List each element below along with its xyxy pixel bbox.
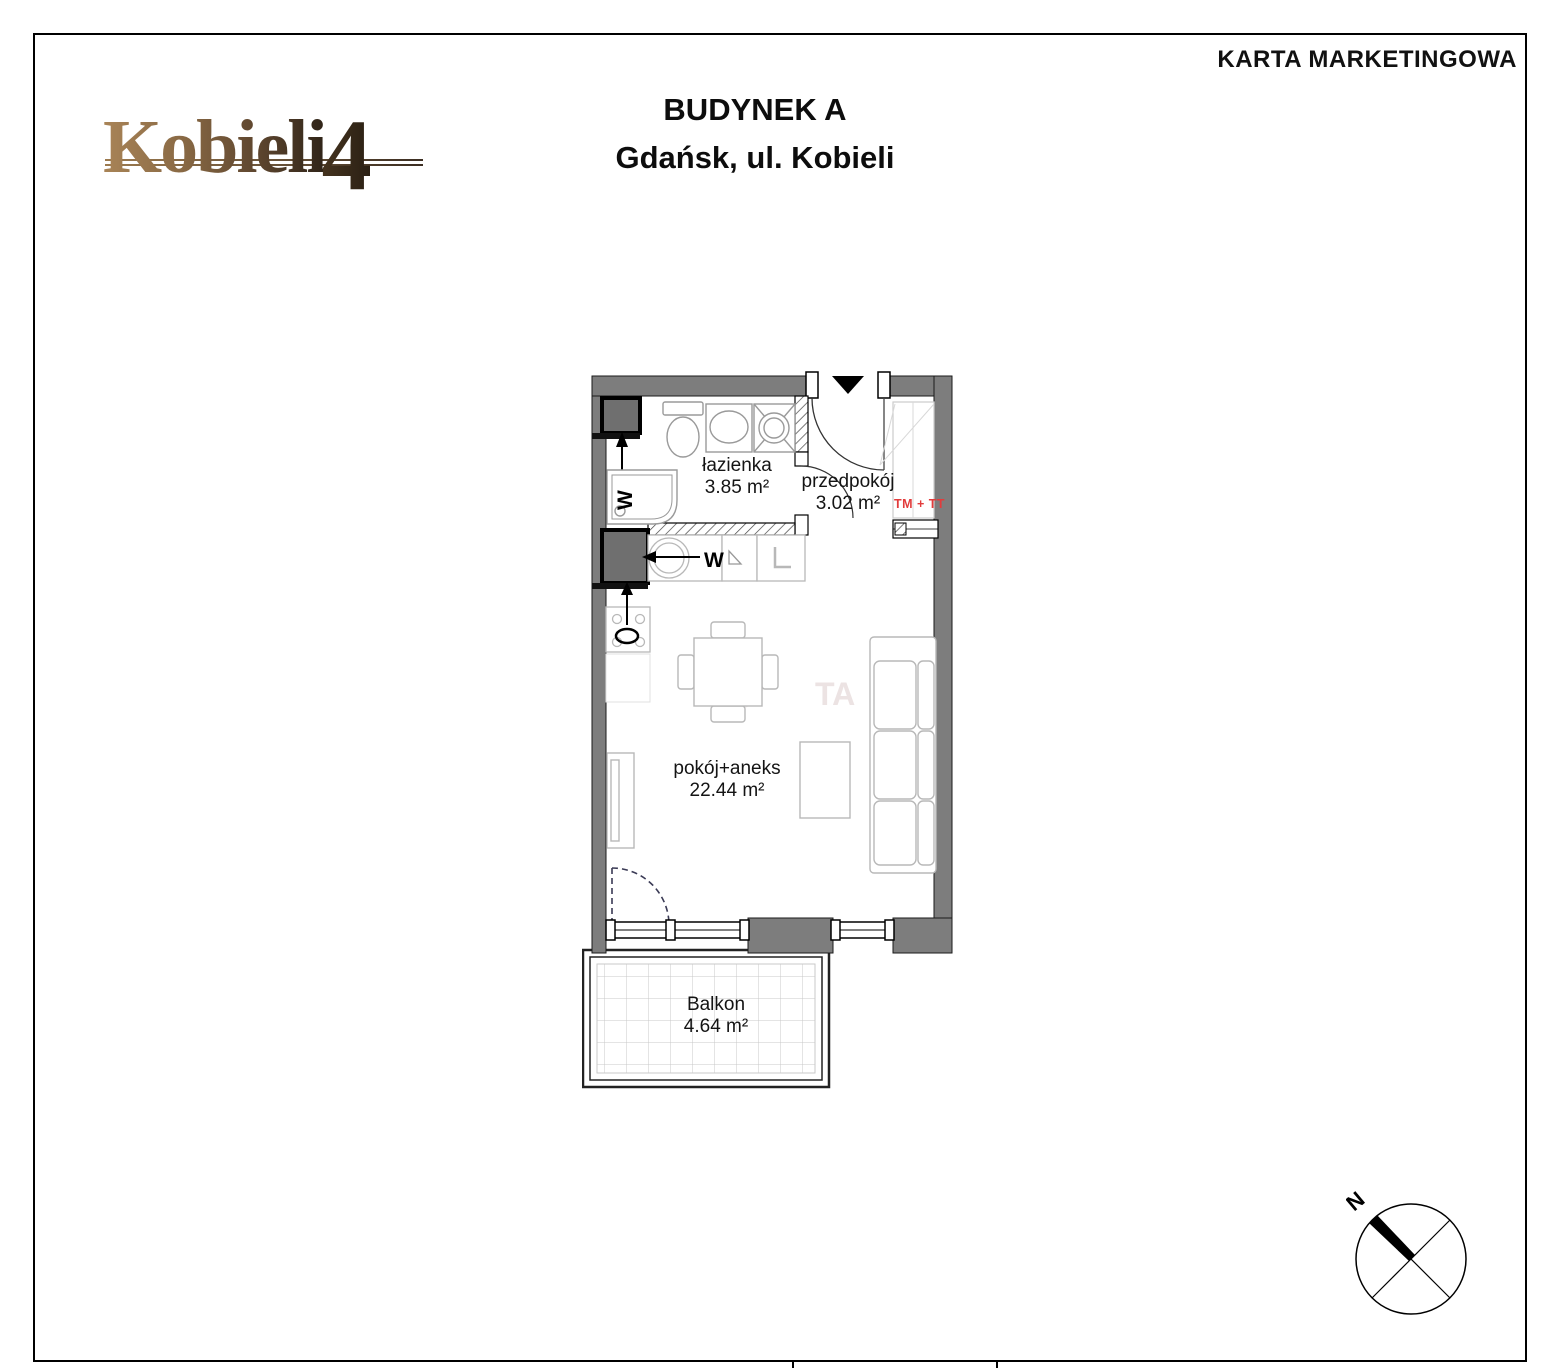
plan-title-block: BUDYNEK A Gdańsk, ul. Kobieli <box>530 86 980 182</box>
balcony-label: Balkon 4.64 m² <box>684 994 748 1038</box>
washbasin <box>706 404 752 452</box>
bathroom-label: łazienka 3.85 m² <box>702 455 772 499</box>
room-name: łazienka <box>702 455 772 477</box>
room-area: 22.44 m² <box>673 780 780 802</box>
living-room-label: pokój+aneks 22.44 m² <box>673 758 780 802</box>
balcony-door-arc <box>612 868 669 925</box>
compass-north-label: N <box>1346 1186 1369 1215</box>
room-area: 4.64 m² <box>684 1016 748 1038</box>
room-area: 3.02 m² <box>802 493 895 515</box>
room-name: Balkon <box>684 994 748 1016</box>
dining-table <box>678 622 778 722</box>
entrance-marker-icon <box>832 376 864 394</box>
room-window <box>831 920 894 940</box>
coffee-table <box>800 742 850 818</box>
logo-number: 4 <box>321 99 370 212</box>
table-column-divider <box>792 1362 794 1368</box>
entrance-door <box>806 372 890 470</box>
room-name: przedpokój <box>802 471 895 493</box>
balcony-window <box>606 920 749 940</box>
stove <box>606 582 650 702</box>
sofa <box>870 637 936 873</box>
hall-closet <box>880 402 938 538</box>
building-address: Gdańsk, ul. Kobieli <box>530 134 980 182</box>
table-column-divider <box>996 1362 998 1368</box>
document-type-label: KARTA MARKETINGOWA <box>1217 46 1517 74</box>
building-title: BUDYNEK A <box>530 86 980 134</box>
logo-text: Kobieli <box>103 105 325 189</box>
toilet <box>663 402 703 457</box>
tm-tt-annotation: TM + TT <box>894 497 945 511</box>
svg-text:TA: TA <box>815 676 855 712</box>
wardrobe <box>607 753 634 848</box>
bathroom-vent-label: W <box>614 490 637 510</box>
marketing-card-page: KARTA MARKETINGOWA Kobieli4 BUDYNEK A Gd… <box>0 0 1562 1368</box>
hallway-label: przedpokój 3.02 m² <box>802 471 895 515</box>
kobieli4-logo: Kobieli4 <box>103 88 463 198</box>
compass-needle-icon <box>1369 1215 1415 1261</box>
compass-rose: N <box>1346 1180 1478 1332</box>
room-area: 3.85 m² <box>702 477 772 499</box>
kitchen-shaft <box>592 530 648 589</box>
room-name: pokój+aneks <box>673 758 780 780</box>
washing-machine <box>754 404 795 452</box>
floor-plan: TA <box>582 360 962 1100</box>
kitchen-vent-label: W <box>704 549 724 572</box>
